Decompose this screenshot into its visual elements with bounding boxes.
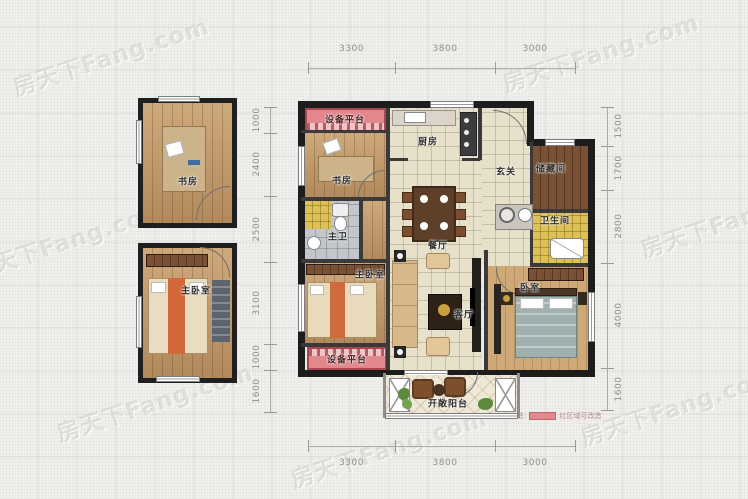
wall (359, 201, 363, 259)
room-label-kitchen: 厨房 (418, 135, 438, 148)
dimension-tick (264, 412, 277, 413)
room-label-equip-bottom: 设备平台 (327, 353, 367, 366)
bathtub (550, 238, 584, 259)
dimension-tick (601, 368, 614, 369)
legend-note-label: 注: (517, 411, 526, 421)
dimension-line-left (270, 107, 271, 412)
dimension-tick (264, 133, 277, 134)
dimension-tick (264, 370, 277, 371)
wall (533, 209, 588, 213)
armchair (426, 253, 450, 269)
dim-left-1: 1000 (252, 105, 264, 135)
dim-left-3: 2500 (252, 214, 264, 244)
wall (478, 108, 482, 160)
chair (402, 209, 413, 220)
room-label-dining: 餐厅 (428, 239, 448, 252)
dimension-tick (601, 107, 614, 108)
chair (455, 192, 466, 203)
dimension-tick (601, 263, 614, 264)
floorplan-image: 房天下Fang.com 房天下Fang.com 房天下Fang.com 房天下F… (0, 0, 748, 499)
room-label-living: 客厅 (454, 308, 474, 321)
plate (440, 222, 448, 230)
balcony-window (385, 413, 518, 419)
wicker-chair (444, 377, 466, 397)
legend: 注: 红区域可改造 (517, 411, 601, 421)
dim-right-5: 1600 (614, 374, 626, 404)
room-label-master-bedroom-main: 主卧室 (355, 268, 385, 281)
pillow (310, 285, 324, 295)
dim-left-6: 1600 (252, 376, 264, 406)
kitchen-sink (404, 112, 426, 123)
floor-hallway (363, 201, 386, 259)
sink (518, 208, 532, 222)
legend-text: 红区域可改造 (559, 411, 601, 421)
wall (530, 263, 588, 267)
plate (440, 195, 448, 203)
watermark: 房天下Fang.com (8, 7, 213, 103)
room-label-bath: 卫生间 (540, 214, 570, 227)
wall (484, 250, 488, 370)
balcony-wall (383, 373, 386, 418)
speaker-cone (397, 349, 403, 355)
chair (455, 226, 466, 237)
chair (455, 209, 466, 220)
dim-right-3: 2800 (614, 211, 626, 241)
window (545, 139, 575, 146)
pillow (549, 298, 573, 309)
wall (301, 130, 386, 133)
dim-bottom-2: 3800 (395, 458, 495, 468)
dimension-tick (264, 196, 277, 197)
pillow (350, 285, 364, 295)
dining-table (412, 186, 456, 242)
wall (390, 158, 408, 161)
dimension-tick (495, 62, 496, 74)
lamp (503, 295, 510, 302)
dim-top-1: 3300 (308, 44, 395, 54)
dim-top-3: 3000 (495, 44, 575, 54)
dimension-tick (495, 440, 496, 452)
tray (438, 304, 450, 316)
room-label-bedroom: 卧室 (520, 281, 540, 294)
dim-left-5: 1000 (252, 342, 264, 372)
toilet-tank (332, 203, 349, 217)
dimension-line-right (607, 107, 608, 410)
dimension-line-bottom (308, 446, 575, 447)
wall (298, 101, 305, 377)
room-label-master-bedroom-detached: 主卧室 (181, 284, 211, 297)
dimension-tick (264, 344, 277, 345)
dimension-tick (308, 440, 309, 452)
dim-right-4: 4000 (614, 300, 626, 330)
watermark: 房天下Fang.com (576, 357, 748, 453)
floor-storage (533, 145, 588, 209)
room-label-master-bath: 主卫 (328, 230, 348, 243)
dimension-tick (395, 62, 396, 74)
burner (464, 130, 469, 135)
nightstand (578, 292, 587, 305)
plate (420, 195, 428, 203)
wall (386, 108, 390, 370)
dimension-tick (264, 262, 277, 263)
dimension-tick (601, 190, 614, 191)
floor-master-bath-shower (305, 201, 331, 229)
armchair (426, 337, 450, 356)
wardrobe (146, 254, 208, 267)
chair (402, 226, 413, 237)
dimension-tick (601, 146, 614, 147)
room-label-entry: 玄关 (496, 165, 516, 178)
burner (464, 142, 469, 147)
legend-swatch (529, 412, 556, 420)
wall (298, 101, 532, 108)
window (136, 296, 142, 348)
dim-top-2: 3800 (395, 44, 495, 54)
wall (301, 343, 386, 347)
window (158, 96, 200, 102)
dimension-tick (264, 107, 277, 108)
room-label-equip-top: 设备平台 (325, 113, 365, 126)
room-label-balcony: 开敞阳台 (428, 397, 468, 410)
plant (402, 399, 412, 409)
balcony-panel (495, 378, 516, 412)
dimension-tick (601, 410, 614, 411)
washer (499, 207, 515, 223)
pillow (520, 298, 544, 309)
dimension-tick (308, 62, 309, 74)
room-label-study-detached: 书房 (178, 175, 198, 188)
dimension-tick (575, 62, 576, 74)
speaker-cone (397, 253, 403, 259)
dimension-tick (395, 440, 396, 452)
watermark: 房天下Fang.com (636, 169, 748, 265)
room-label-study-main: 书房 (332, 174, 352, 187)
plate (420, 222, 428, 230)
window (298, 146, 305, 186)
dimension-line-top (308, 68, 575, 69)
bed-runner (330, 282, 345, 338)
sofa (392, 260, 418, 348)
wall (301, 259, 386, 263)
book (188, 160, 200, 165)
window (136, 120, 142, 164)
wardrobe (528, 268, 584, 281)
wall (301, 197, 386, 201)
dim-left-2: 2400 (252, 149, 264, 179)
window (298, 284, 305, 332)
dimension-tick (575, 440, 576, 452)
window (156, 376, 200, 382)
window (588, 292, 595, 342)
window (430, 101, 474, 108)
sink (307, 236, 321, 250)
round-table (433, 384, 445, 396)
dim-bottom-3: 3000 (495, 458, 575, 468)
burner (464, 118, 469, 123)
dim-right-1: 1500 (614, 111, 626, 141)
chair (402, 192, 413, 203)
rug (212, 280, 230, 342)
dim-left-4: 3100 (252, 288, 264, 318)
pillow (151, 282, 166, 293)
dim-bottom-1: 3300 (308, 458, 395, 468)
wall (462, 158, 480, 161)
room-label-storage: 储藏间 (536, 162, 566, 175)
dim-right-2: 1700 (614, 153, 626, 183)
